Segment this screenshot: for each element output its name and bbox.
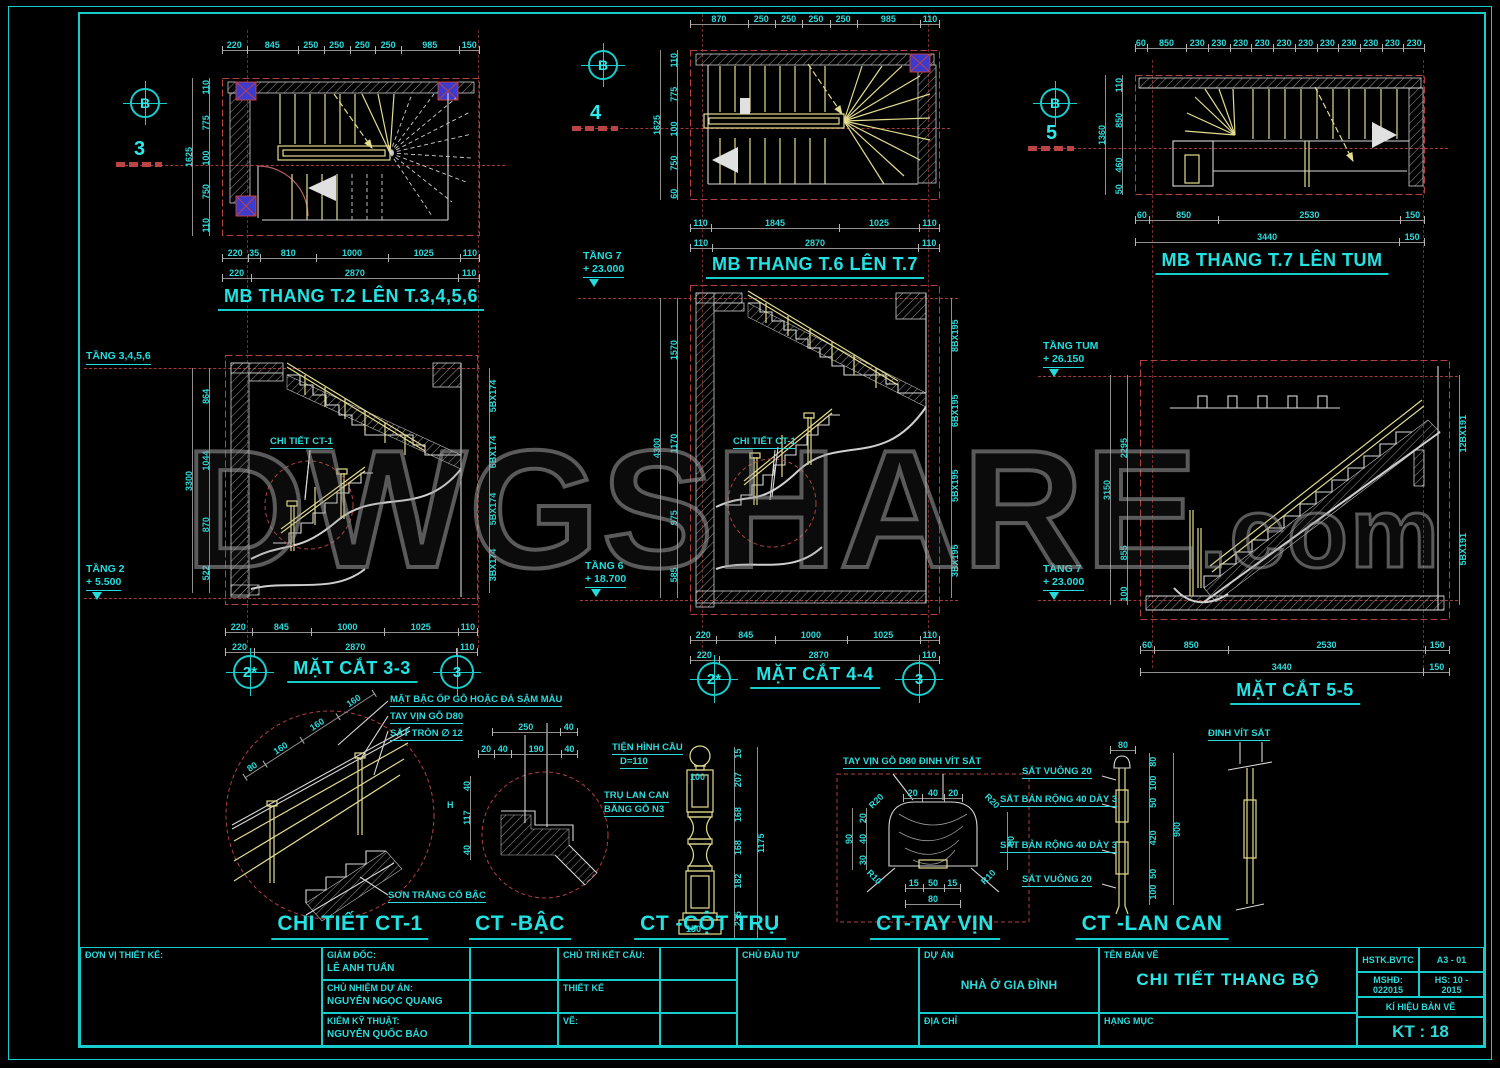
tb-signature-cell [660, 980, 737, 1013]
tb-category: HẠNG MỤC [1099, 1013, 1357, 1046]
tb-label: GIÁM ĐỐC: [327, 950, 465, 960]
section-33-linework [226, 356, 478, 605]
s44-left-dims: 15701170975585 [667, 298, 681, 598]
tb-signature-cell [470, 1013, 558, 1046]
dim-label: 230 [1317, 38, 1339, 52]
level-elevation: + 23.000 [1043, 576, 1084, 591]
dim-label: 1000 [316, 248, 387, 262]
dim-label: 250 [324, 40, 350, 54]
section-marker-dashes [1028, 146, 1074, 151]
dim-label: 20 [478, 744, 494, 758]
dim-label: 250 [492, 722, 560, 736]
cottru-v-total: 1175 [754, 747, 768, 939]
section-44-linework [691, 286, 940, 615]
dim-label: 35 [248, 248, 260, 262]
dim-label: 60 [1140, 640, 1154, 654]
dim-label: 5BX191 [1456, 493, 1470, 606]
detail-ct1-title: CHI TIẾT CT-1 [271, 912, 428, 940]
level-marker: TẦNG 6 + 18.700 [585, 560, 626, 597]
dim-label: 250 [775, 14, 802, 28]
tb-label: ĐỊA CHỈ [924, 1016, 957, 1026]
dim-label: 40 [460, 776, 474, 796]
dim-label: 975 [667, 484, 681, 551]
tb-meta-mshd: MSHĐ: 022015 [1357, 972, 1419, 997]
section33-title: MẶT CẮT 3-3 [287, 658, 417, 683]
dim-label: 150 [459, 40, 480, 54]
dim-label: 15 [944, 878, 962, 892]
grid-bubble-3: 3 [440, 655, 474, 689]
level-name: TẦNG 3,4,5,6 [86, 350, 151, 365]
grid-bubble-B: B [130, 88, 160, 118]
tb-role-director: GIÁM ĐỐC: LÊ ANH TUẤN [322, 947, 470, 980]
tb-label: CHỦ NHIỆM DỰ ÁN: [327, 983, 465, 993]
dim-label: 80 [1110, 740, 1136, 754]
lancan-note: SẮT BẢN RỘNG 40 DÀY 3 [1000, 840, 1117, 853]
detail-callout-ct1: CHI TIẾT CT-1 [270, 436, 333, 449]
dim-label: 20 [903, 788, 922, 802]
dim-label: 40 [856, 828, 870, 850]
tb-drawing-number-value: KT : 18 [1392, 1022, 1449, 1042]
stair-direction-arrow [1372, 122, 1397, 148]
dim-label: 3150 [1100, 375, 1114, 605]
dim-label: 110 [199, 216, 213, 236]
dim-label: 90 [842, 808, 856, 870]
dim-label: 5BX174 [486, 368, 500, 424]
dim-label: 2530 [1228, 640, 1424, 654]
dim-label: 230 [1360, 38, 1382, 52]
plan3-left-total: 1360 [1095, 75, 1109, 195]
dim-label: 30 [856, 850, 870, 870]
plan1-title: MB THANG T.2 LÊN T.3,4,5,6 [218, 286, 484, 311]
level-marker: TẦNG TUM + 26.150 [1043, 340, 1098, 377]
dim-label: 864 [199, 368, 213, 425]
grid-bubble-2: 2* [233, 655, 267, 689]
plan3-top-dims: 60850230230230230230230230230230230230 [1135, 38, 1425, 52]
dim-label: 2530 [1218, 210, 1400, 224]
dim-label: 850 [1112, 94, 1126, 147]
section-marker-dashes [116, 162, 162, 167]
dim-label: 1000 [775, 630, 847, 644]
tayvin-note: TAY VỊN GỖ D80 ĐINH VÍT SẮT [843, 756, 981, 769]
tb-meta-hstk: HSTK.BVTC [1357, 947, 1419, 972]
dim-label: 855 [1117, 522, 1131, 584]
dim-label: 1025 [388, 248, 460, 262]
dim-label: 2870 [251, 268, 458, 282]
section-55-linework [1141, 361, 1450, 620]
s33-right-dims: 5BX1746BX1745BX1743BX174 [486, 368, 500, 593]
bac-top-dims1: 25040 [492, 722, 578, 736]
grid-bubble-B: B [588, 50, 618, 80]
dim-label: 110 [456, 642, 478, 656]
dim-label: 182 [731, 864, 745, 899]
dim-label: 985 [401, 40, 458, 54]
level-name: TẦNG 7 [1043, 563, 1082, 575]
s33-bottom-dims2: 2202870110 [225, 642, 478, 656]
cottru-width-top: 100 [690, 772, 705, 782]
tb-label: CHỦ ĐẦU TƯ [742, 950, 799, 960]
dim-label: 110 [690, 238, 712, 252]
tb-signature-cell [660, 1013, 737, 1046]
level-name: TẦNG 6 [585, 560, 624, 572]
tb-drawing-title: CHI TIẾT THANG BỘ [1100, 970, 1356, 990]
section-marker-5: 5 [1046, 122, 1057, 145]
dim-label: 250 [748, 14, 775, 28]
dim-label: 870 [199, 496, 213, 553]
cottru-note: TIỆN HÌNH CẦU [612, 742, 683, 755]
section-marker-dashes [572, 126, 618, 131]
dim-label: 100 [667, 119, 681, 139]
dim-label: 110 [920, 630, 940, 644]
cottru-v-dims: 15207168168182235 [731, 747, 745, 939]
s33-left-total: 3300 [182, 368, 196, 593]
tb-label: VẼ: [563, 1016, 578, 1026]
dim-label: 60 [1135, 210, 1149, 224]
dim-label: 110 [919, 218, 940, 232]
grid-bubble-B: B [1040, 88, 1070, 118]
dim-label: 40 [494, 744, 511, 758]
cad-sheet: 220845250250250250985150 110775100750110… [0, 0, 1500, 1068]
tb-role-checker: KIỂM KỸ THUẬT: NGUYỄN QUỐC BẢO [322, 1013, 470, 1046]
level-marker: TẦNG 3,4,5,6 [86, 350, 151, 365]
dim-label: 2870 [712, 238, 919, 252]
tb-client: CHỦ ĐẦU TƯ [737, 947, 919, 1046]
level-elevation: + 5.500 [86, 576, 121, 591]
dim-label: 15 [731, 747, 745, 761]
tb-signature-cell [470, 980, 558, 1013]
level-arrow-icon [591, 589, 601, 597]
dim-label: 150 [1425, 640, 1450, 654]
dim-label: 60 [667, 187, 681, 200]
tb-name: LÊ ANH TUẤN [327, 963, 465, 974]
lancan-v-total: 900 [1170, 753, 1184, 905]
s44-bottom-dims2: 2202870110 [690, 650, 940, 664]
dim-label: 1025 [847, 630, 920, 644]
cottru-note: D=110 [620, 756, 648, 769]
tb-address: ĐỊA CHỈ [919, 1013, 1099, 1046]
dim-label: 585 [667, 552, 681, 598]
dim-label: 40 [922, 788, 943, 802]
s55-left-total: 3150 [1100, 375, 1114, 605]
dim-label: 3440 [1140, 662, 1423, 676]
dim-label: 230 [1273, 38, 1295, 52]
cottru-note: BẰNG GỖ N3 [604, 804, 664, 817]
dim-label: 230 [1230, 38, 1252, 52]
level-arrow-icon [1049, 592, 1059, 600]
dim-label: 100 [1146, 771, 1160, 796]
bac-top-dims2: 204019040 [478, 744, 578, 758]
detail-lancan-title: CT -LAN CAN [1076, 912, 1229, 940]
tb-label: KIỂM KỸ THUẬT: [327, 1016, 465, 1026]
tayvin-bottom-dims: 155015 [905, 878, 961, 892]
dim-label: 150 [1423, 662, 1450, 676]
tayvin-bottom-total: 80 [905, 894, 961, 908]
bac-left-dims: 4011740 [460, 776, 474, 860]
dim-label: 250 [298, 40, 324, 54]
dim-label: 110 [458, 268, 480, 282]
dim-label: 230 [1382, 38, 1404, 52]
dim-label: 110 [1112, 75, 1126, 94]
tb-label: A3 - 01 [1437, 955, 1467, 965]
plan-t7-linework [1136, 76, 1425, 195]
dim-label: 5BX174 [486, 481, 500, 537]
dim-label: 6BX174 [486, 424, 500, 480]
dim-label: 1044 [199, 425, 213, 496]
dim-label: 50 [923, 878, 944, 892]
plan2-left-dims: 11077510075060 [667, 50, 681, 200]
dim-label: 230 [1186, 38, 1208, 52]
dim-label: 4300 [650, 298, 664, 598]
plan2-bottom-dims2: 1102870110 [690, 238, 940, 252]
dim-label: 250 [802, 14, 829, 28]
dim-label: 40 [561, 744, 578, 758]
level-name: TẦNG 2 [86, 563, 125, 575]
dim-label: 522 [199, 553, 213, 593]
s44-bottom-dims1: 22084510001025110 [690, 630, 940, 644]
s55-bottom-dims2: 3440150 [1140, 662, 1450, 676]
plan1-left-total: 1625 [182, 78, 196, 236]
dim-label: 100 [199, 148, 213, 168]
lancan-top-dim: 80 [1110, 740, 1136, 754]
dim-label: 870 [690, 14, 748, 28]
dim-label: 230 [1338, 38, 1360, 52]
dim-label: 220 [690, 630, 716, 644]
s33-bottom-dims1: 22084510001025110 [225, 622, 478, 636]
tb-label: HS: 10 - 2015 [1424, 975, 1479, 995]
dim-label: 230 [1295, 38, 1317, 52]
dim-label: 810 [260, 248, 316, 262]
plan3-bottom-dims1: 608502530150 [1135, 210, 1425, 224]
plan1-top-dims: 220845250250250250985150 [222, 40, 480, 54]
dim-label: 100 [1117, 584, 1131, 605]
dim-label: 110 [199, 78, 213, 98]
dim-label: 110 [920, 14, 940, 28]
dim-label: 80 [905, 894, 961, 908]
tb-role-structure: CHỦ TRÌ KẾT CẤU: [558, 947, 660, 980]
tb-label: ĐƠN VỊ THIẾT KẾ: [85, 950, 163, 960]
dim-label: 985 [857, 14, 920, 28]
tb-symbol-label: KÍ HIỆU BẢN VẼ [1357, 997, 1484, 1017]
level-name: TẦNG TUM [1043, 340, 1098, 352]
dim-label: 1025 [839, 218, 919, 232]
tb-label: DỰ ÁN [924, 950, 953, 960]
dim-label: 3BX195 [948, 523, 962, 598]
tayvin-left-dims: 204030 [856, 808, 870, 870]
dim-label: 1025 [384, 622, 458, 636]
dim-label: 8BX195 [948, 298, 962, 373]
dim-label: 100 [1146, 880, 1160, 905]
tb-drawing-name: TÊN BẢN VẼ CHI TIẾT THANG BỘ [1099, 947, 1357, 1013]
dim-label: 1625 [182, 78, 196, 236]
dim-label: 12BX191 [1456, 375, 1470, 493]
section-marker-4: 4 [590, 102, 601, 125]
dim-label: 1175 [754, 747, 768, 939]
level-arrow-icon [1049, 369, 1059, 377]
dim-label: 250 [375, 40, 401, 54]
dim-label: 150 [1399, 232, 1425, 246]
tb-design-unit: ĐƠN VỊ THIẾT KẾ: [80, 947, 322, 1046]
section-marker-3: 3 [134, 138, 145, 161]
tb-label: HSTK.BVTC [1362, 955, 1414, 965]
dim-label: 50 [1146, 795, 1160, 810]
dim-label: 168 [731, 831, 745, 864]
tb-role-design: THIẾT KẾ [558, 980, 660, 1013]
drawing-linework [0, 0, 1500, 1068]
dim-label: 1360 [1095, 75, 1109, 195]
dim-label: 220 [222, 248, 248, 262]
s33-left-dims: 8641044870522 [199, 368, 213, 593]
grid-bubble-2: 2* [697, 662, 731, 696]
plan2-bottom-dims1: 11018451025110 [690, 218, 940, 232]
cottru-note: TRỤ LAN CAN [604, 790, 669, 803]
dim-label: 250 [830, 14, 857, 28]
level-elevation: + 26.150 [1043, 353, 1084, 368]
dim-label: 230 [1208, 38, 1230, 52]
level-name: TẦNG 7 [583, 250, 622, 262]
dim-label: 110 [690, 218, 711, 232]
dim-label: 190 [511, 744, 560, 758]
dim-label: 850 [1154, 640, 1228, 654]
plan3-left-dims: 11085046050 [1112, 75, 1126, 195]
dim-label: 2295 [1117, 375, 1131, 522]
dim-label: 50 [1146, 866, 1160, 881]
dim-label: 20 [856, 808, 870, 828]
tb-label: HẠNG MỤC [1104, 1016, 1154, 1026]
detail-bac-title: CT -BẬC [469, 912, 571, 940]
dim-label: 80 [1146, 753, 1160, 771]
s44-left-total: 4300 [650, 298, 664, 598]
ct1-note-bottom: SƠN TRẮNG CỔ BẬC [388, 890, 486, 903]
detail-lancan-linework [1102, 742, 1272, 914]
dim-label: 230 [1251, 38, 1273, 52]
tb-drawing-number: KT : 18 [1357, 1017, 1484, 1046]
tb-signature-cell [470, 947, 558, 980]
dim-label: 60 [1135, 38, 1147, 52]
plan-t2-linework [223, 79, 480, 236]
tb-project: DỰ ÁN NHÀ Ở GIA ĐÌNH [919, 947, 1099, 1013]
dim-label: 900 [1170, 753, 1184, 905]
dim-label: 3BX174 [486, 537, 500, 593]
plan2-left-total: 1625 [650, 50, 664, 200]
lancan-note: SẮT VUÔNG 20 [1022, 874, 1092, 887]
bac-h-label: H [447, 800, 454, 810]
dim-label: 1000 [311, 622, 384, 636]
plan2-top-dims: 870250250250250985110 [690, 14, 940, 28]
tb-role-manager: CHỦ NHIỆM DỰ ÁN: NGUYỄN NGỌC QUANG [322, 980, 470, 1013]
stair-direction-arrow [712, 147, 738, 173]
lancan-note: SẮT VUÔNG 20 [1022, 766, 1092, 779]
detail-callout-ct1: CHI TIẾT CT-1 [733, 436, 796, 449]
dim-label: 850 [1149, 210, 1218, 224]
dim-label: 3440 [1135, 232, 1399, 246]
dim-label: 40 [460, 840, 474, 860]
tayvin-top-dims: 204020 [903, 788, 963, 802]
dim-label: 250 [350, 40, 376, 54]
dim-label: 420 [1146, 810, 1160, 865]
dim-label: 40 [560, 722, 578, 736]
dim-label: 150 [1400, 210, 1425, 224]
plan3-bottom-dims2: 3440150 [1135, 232, 1425, 246]
dim-label: 2870 [719, 650, 919, 664]
dim-label: 2870 [254, 642, 456, 656]
dim-label: 168 [731, 798, 745, 831]
plan1-left-dims: 110775100750110 [199, 78, 213, 236]
plan1-bottom-dims2: 2202870110 [222, 268, 480, 282]
s55-bottom-dims1: 608502530150 [1140, 640, 1450, 654]
dim-label: 5BX195 [948, 448, 962, 523]
dim-label: 845 [716, 630, 775, 644]
level-arrow-icon [589, 279, 599, 287]
dim-label: 220 [222, 268, 251, 282]
dim-label: 110 [918, 238, 940, 252]
detail-tayvin-title: CT-TAY VỊN [870, 912, 1000, 940]
dim-label: 845 [247, 40, 298, 54]
lancan-note-top: ĐINH VÍT SẮT [1208, 728, 1270, 741]
s55-right-dims: 12BX1915BX191 [1456, 375, 1470, 605]
dim-label: 1570 [667, 298, 681, 402]
section55-title: MẶT CẮT 5-5 [1230, 680, 1360, 705]
s44-right-dims: 8BX1956BX1955BX1953BX195 [948, 298, 962, 598]
title-block: ĐƠN VỊ THIẾT KẾ: GIÁM ĐỐC: LÊ ANH TUẤN C… [80, 947, 1484, 1046]
plan1-bottom-dims1: 2203581010001025110 [222, 248, 480, 262]
dim-label: 207 [731, 761, 745, 798]
lancan-v-dims: 801005042050100 [1146, 753, 1160, 905]
tb-role-draw: VẼ: [558, 1013, 660, 1046]
lancan-note: SẮT BẢN RỘNG 40 DÀY 3 [1000, 794, 1117, 807]
tb-meta-paper: A3 - 01 [1419, 947, 1484, 972]
tayvin-left-total: 90 [842, 808, 856, 870]
ct1-note: MẶT BẬC ỐP GỖ HOẶC ĐÁ SẬM MÀU [390, 694, 562, 707]
dim-label: 850 [1147, 38, 1187, 52]
dim-label: 110 [460, 248, 480, 262]
dim-label: 775 [667, 69, 681, 119]
level-marker: TẦNG 7 + 23.000 [1043, 563, 1084, 600]
dim-label: 220 [225, 622, 252, 636]
tb-label: MSHĐ: 022015 [1362, 975, 1414, 995]
dim-label: 110 [458, 622, 478, 636]
level-marker: TẦNG 2 + 5.500 [86, 563, 125, 600]
plan2-title: MB THANG T.6 LÊN T.7 [706, 254, 924, 279]
dim-label: 117 [460, 796, 474, 840]
dim-label: 1170 [667, 402, 681, 484]
dim-label: 6BX195 [948, 373, 962, 448]
ct1-note: SẮT TRÒN ∅ 12 [390, 728, 463, 741]
dim-label: 1625 [650, 50, 664, 200]
tb-label: KÍ HIỆU BẢN VẼ [1386, 1002, 1456, 1012]
dim-label: 845 [252, 622, 311, 636]
tb-meta-hs: HS: 10 - 2015 [1419, 972, 1484, 997]
dim-label: 750 [667, 139, 681, 188]
dim-label: 775 [199, 98, 213, 148]
level-marker: TẦNG 7 + 23.000 [583, 250, 624, 287]
level-arrow-icon [92, 592, 102, 600]
level-elevation: + 23.000 [583, 263, 624, 278]
plan-t6-linework [691, 51, 940, 200]
dim-label: 20 [944, 788, 963, 802]
dim-label: 15 [905, 878, 923, 892]
detail-cottru-title: CT -CỘT TRỤ [634, 912, 786, 940]
tb-name: NGUYỄN QUỐC BẢO [327, 1029, 465, 1040]
tb-name: NGUYỄN NGỌC QUANG [327, 996, 465, 1007]
dim-label: 220 [222, 40, 247, 54]
section44-title: MẶT CẮT 4-4 [750, 664, 880, 689]
dim-label: 460 [1112, 147, 1126, 183]
tb-label: TÊN BẢN VẼ [1104, 950, 1159, 960]
tb-label: THIẾT KẾ [563, 983, 604, 993]
dim-label: 1845 [711, 218, 839, 232]
grid-bubble-3: 3 [902, 662, 936, 696]
tb-label: CHỦ TRÌ KẾT CẤU: [563, 950, 645, 960]
s55-left-dims: 2295855100 [1117, 375, 1131, 605]
